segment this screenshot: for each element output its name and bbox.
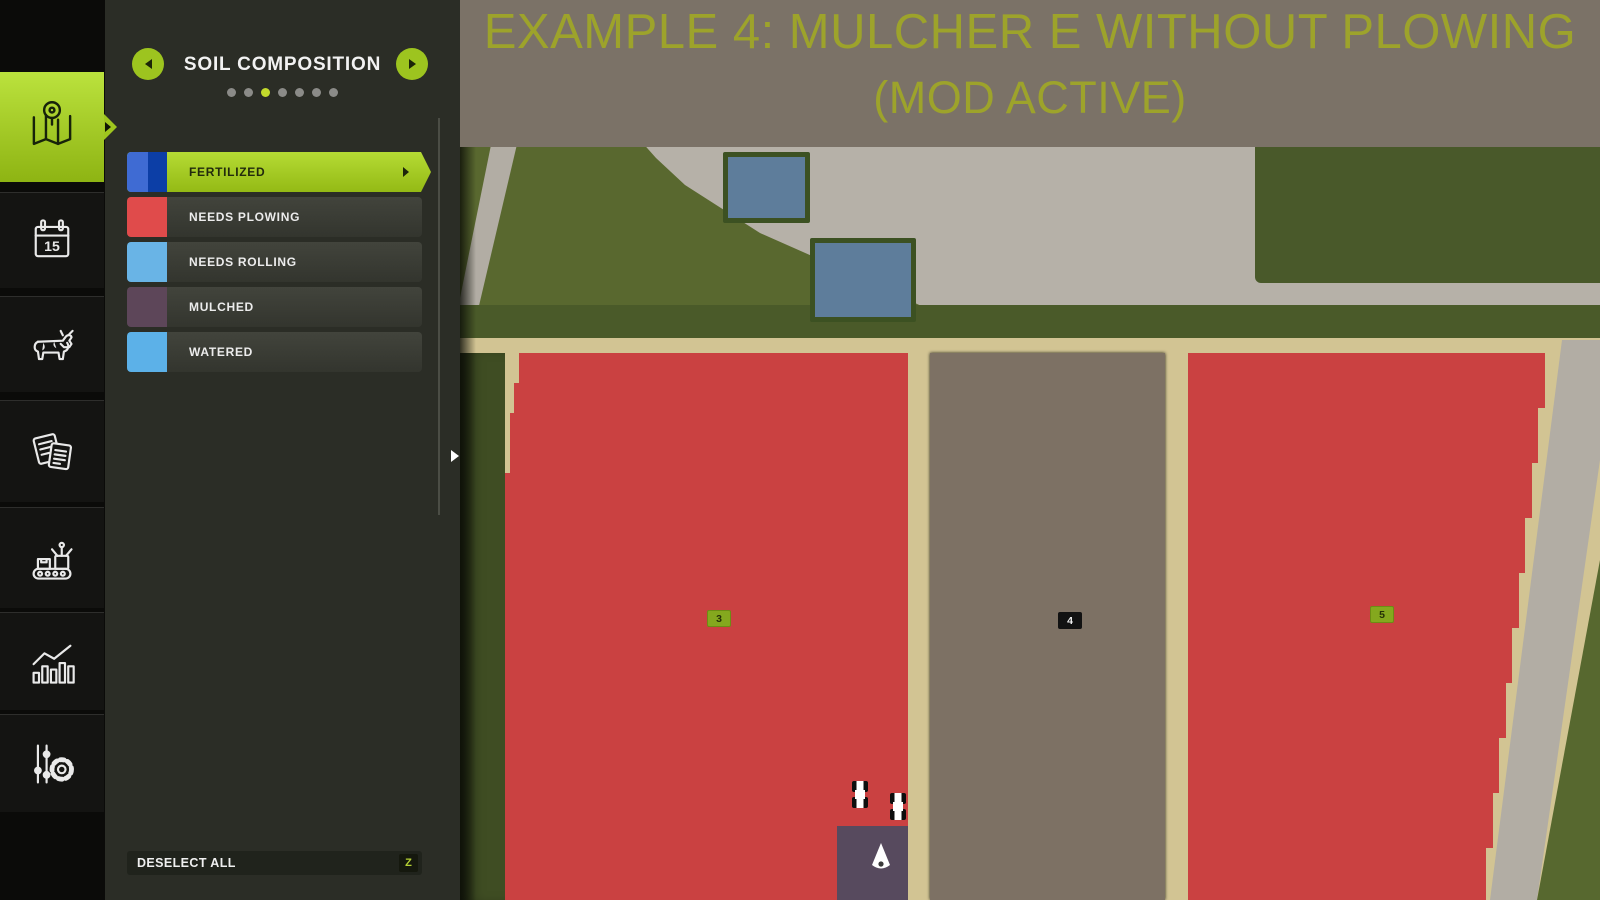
game-screen: 3 4 5 — [0, 0, 1600, 900]
panel-header: SOIL COMPOSITION — [105, 44, 460, 104]
legend-item-needs-plowing[interactable]: NEEDS PLOWING — [127, 197, 422, 237]
hotkey-z-badge: Z — [399, 854, 418, 872]
banner-line-1: EXAMPLE 4: MULCHER E WITHOUT PLOWING — [484, 6, 1577, 60]
map-viewport[interactable]: 3 4 5 — [460, 0, 1600, 900]
legend-swatch — [127, 332, 167, 372]
legend-swatch — [127, 242, 167, 282]
player-arrow-icon — [871, 843, 891, 871]
legend-item-mulched[interactable]: MULCHED — [127, 287, 422, 327]
soil-composition-panel: SOIL COMPOSITION FERTILIZED NEEDS PLOWIN… — [105, 0, 460, 900]
sidebar-item-map[interactable] — [0, 72, 104, 182]
sidebar-item-settings[interactable] — [0, 714, 104, 812]
arrow-right-icon — [403, 167, 409, 177]
field-4-region-unowned[interactable] — [930, 353, 1165, 900]
cow-icon — [26, 319, 78, 371]
pager-dot — [261, 88, 270, 97]
pager-dots — [105, 88, 460, 97]
vehicle-marker-icon — [890, 793, 906, 820]
deselect-all-button[interactable]: DESELECT ALL Z — [127, 851, 422, 875]
vehicle-marker-icon — [852, 781, 868, 808]
pager-dot — [278, 88, 287, 97]
documents-icon — [26, 426, 78, 478]
legend-list: FERTILIZED NEEDS PLOWING NEEDS ROLLING M… — [127, 152, 431, 377]
field-number-badge-3[interactable]: 3 — [707, 610, 731, 627]
legend-label: WATERED — [189, 345, 253, 359]
arrow-right-icon — [409, 59, 416, 69]
selected-tab-pointer — [104, 114, 117, 140]
legend-item-fertilized[interactable]: FERTILIZED — [127, 152, 431, 192]
scrollbar-track[interactable] — [438, 118, 440, 515]
sliders-gear-icon — [26, 738, 78, 790]
legend-swatch — [127, 152, 167, 192]
legend-item-watered[interactable]: WATERED — [127, 332, 422, 372]
map-tree-patch — [1255, 147, 1600, 283]
legend-label: NEEDS ROLLING — [189, 255, 297, 269]
sidebar-nav: 15 — [0, 0, 105, 900]
banner-line-2: (MOD ACTIVE) — [873, 73, 1187, 123]
field-5-region-needs-plowing[interactable] — [1188, 353, 1545, 900]
sidebar-item-contracts[interactable] — [0, 400, 104, 502]
pager-dot — [312, 88, 321, 97]
svg-text:15: 15 — [44, 237, 60, 253]
legend-label: FERTILIZED — [189, 165, 265, 179]
map-pin-icon — [23, 98, 81, 156]
pager-dot — [227, 88, 236, 97]
legend-swatch — [127, 197, 167, 237]
legend-label: NEEDS PLOWING — [189, 210, 300, 224]
sidebar-item-production[interactable] — [0, 507, 104, 608]
production-line-icon — [26, 532, 78, 584]
sidebar-item-calendar[interactable]: 15 — [0, 192, 104, 288]
field-3-region-needs-plowing[interactable] — [505, 353, 908, 900]
field-number-badge-4[interactable]: 4 — [1058, 612, 1082, 629]
tutorial-banner: EXAMPLE 4: MULCHER E WITHOUT PLOWING (MO… — [460, 0, 1600, 147]
pager-dot — [244, 88, 253, 97]
bar-chart-icon — [26, 636, 78, 688]
pager-dot — [295, 88, 304, 97]
deselect-all-label: DESELECT ALL — [137, 856, 236, 870]
sidebar-item-animals[interactable] — [0, 296, 104, 392]
next-page-button[interactable] — [396, 48, 428, 80]
legend-item-needs-rolling[interactable]: NEEDS ROLLING — [127, 242, 422, 282]
legend-label: MULCHED — [189, 300, 254, 314]
legend-swatch — [127, 287, 167, 327]
panel-expand-arrow-icon[interactable] — [451, 450, 459, 462]
map-building-2 — [810, 238, 916, 322]
map-building-1 — [723, 152, 810, 223]
calendar-icon: 15 — [26, 215, 78, 267]
sidebar-item-statistics[interactable] — [0, 612, 104, 710]
pager-dot — [329, 88, 338, 97]
map-grass-strip — [460, 305, 1600, 340]
field-number-badge-5[interactable]: 5 — [1370, 606, 1394, 623]
panel-shadow — [460, 140, 476, 900]
